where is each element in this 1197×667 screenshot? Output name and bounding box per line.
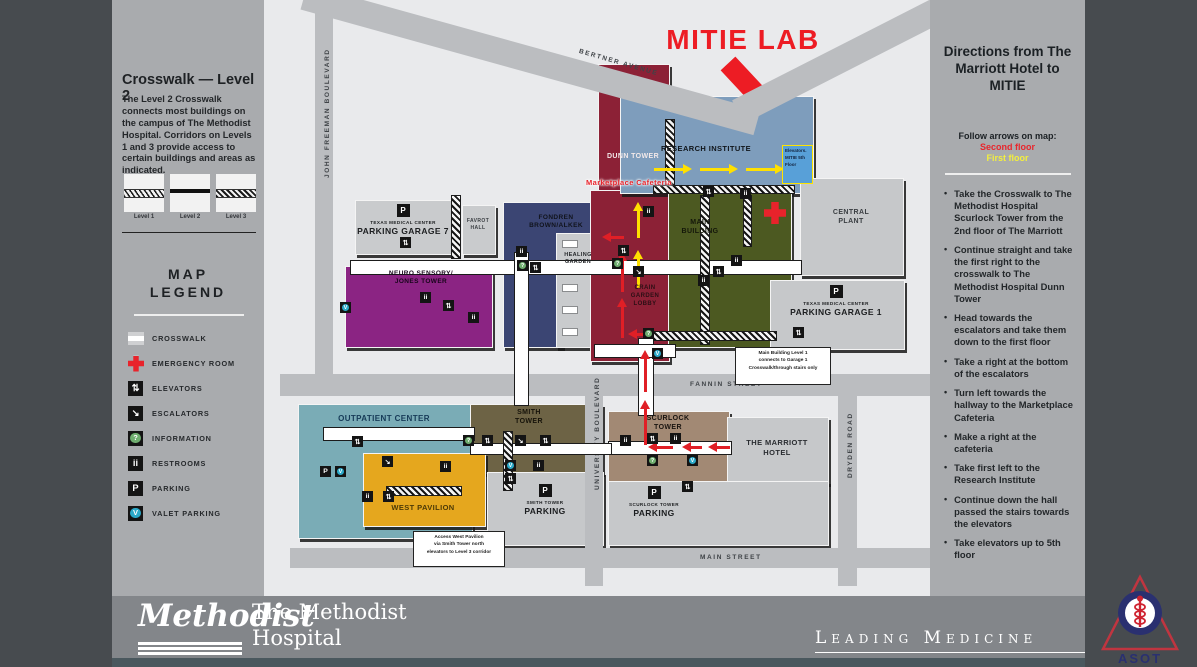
valet-parking-icon: V [128,506,143,521]
elevators-icon: ⇅ [540,435,551,446]
first-floor-route-arrow-head [729,164,738,174]
label-line: BROWN/ALKEK [481,222,631,230]
legend-label: EMERGENCY ROOM [152,359,235,368]
legend-item: VVALET PARKING [128,501,258,526]
label-line: TOWER [593,423,743,432]
building-label-central: CENTRALPLANT [776,208,926,226]
legend-item: iiRESTROOMS [128,451,258,476]
street-bertner [301,0,761,135]
leading-medicine-tagline: Leading Medicine [815,628,1085,653]
label-line: THE MARRIOTT [702,438,852,448]
valet-circle: V [130,508,141,519]
label-line: CRAIN [570,285,720,293]
label-line: RESEARCH INSTITUTE [631,144,781,154]
step-text: Continue straight and take the first rig… [954,244,1076,305]
escalators-icon: ↘ [515,435,526,446]
step-text: Continue down the hall passed the stairs… [954,494,1076,531]
information-icon: ? [463,435,474,446]
legend-item: EMERGENCY ROOM [128,351,258,376]
first-floor-route-arrow-head [633,202,643,211]
crosswalk-corridor [594,344,676,358]
legend-item: CROSSWALK [128,326,258,351]
mitie-box-line: MITIE 5th [785,154,812,161]
second-floor-route-arrow-shaft [610,236,624,239]
crosswalk-level-3-swatch: Level 3 [216,174,256,212]
crosswalk-level-2-swatch: Level 2 [170,174,210,212]
bullet: • [944,244,947,305]
elevators-icon: ⇅ [703,186,714,197]
note-line: Main Building Level 1 [737,350,829,357]
directions-steps: •Take the Crosswalk to The Methodist Hos… [944,188,1076,569]
map-legend-items: CROSSWALKEMERGENCY ROOM⇅ELEVATORS↘ESCALA… [128,326,258,526]
elevators-icon: ⇅ [682,481,693,492]
emergency-cross-legend-icon [128,356,144,372]
building-label-garage1: PARKING GARAGE 1 [761,307,911,318]
bullet: • [944,462,947,486]
information-circle: ? [465,437,473,445]
restrooms-icon: ii [420,292,431,303]
elevators-legend-icon: ⇅ [128,381,144,397]
restrooms-icon: ii [468,312,479,323]
street-label-johnfreeman: JOHN FREEMAN BOULEVARD [324,48,331,178]
direction-step: •Take first left to the Research Institu… [944,462,1076,486]
information-legend-icon: ? [128,431,144,447]
label-line: SMITH [454,408,604,417]
label-line: PLANT [776,217,926,226]
legend-label: INFORMATION [152,434,212,443]
building-label-outpatient: OUTPATIENT CENTER [309,414,459,424]
valet-circle: V [342,304,350,312]
building-label-healing: HEALINGGARDEN [503,252,653,266]
second-floor-route-arrow-shaft [644,358,647,392]
second-floor-route-arrow-shaft [621,306,624,338]
building-central [800,178,904,276]
hospital-name-line1: The Methodist [252,600,407,624]
map-note-note1: Main Building Level 1connects to Garage … [735,347,831,385]
step-text: Turn left towards the hallway to the Mar… [954,387,1076,424]
marketplace-label: Marketplace Cafeteria [554,178,704,188]
label-line: BUILDING [625,227,775,236]
note-line: Crosswalk/through stairs only [737,365,829,372]
note-line: connects to Garage 1 [737,357,829,364]
restrooms-icon: ii [440,461,451,472]
step-text: Take a right at the bottom of the escala… [954,356,1076,380]
directions-title: Directions from The Marriott Hotel to MI… [942,44,1073,95]
swatch-label: Level 2 [170,214,210,220]
information-circle: ? [130,433,141,444]
direction-step: •Turn left towards the hallway to the Ma… [944,387,1076,424]
building-label-smith: SMITHTOWER [454,408,604,426]
swatch-stripe [170,189,210,193]
step-text: Head towards the escalators and take the… [954,312,1076,349]
crosswalk-corridor [323,427,475,441]
swatch-label: Level 1 [124,214,164,220]
label-line: TOWER [454,417,604,426]
legend-label: ELEVATORS [152,384,203,393]
street-label-mainst: MAIN STREET [700,554,762,561]
bullet: • [944,312,947,349]
bullet: • [944,494,947,531]
elevators-icon: ⇅ [505,473,516,484]
direction-step: •Take elevators up to 5th floor [944,537,1076,561]
crosswalk-swatch-legend-icon [128,331,144,347]
note-line: Access West Pavilion [415,534,503,541]
valet-parking-icon: V [335,466,346,477]
information-icon: ? [643,328,654,339]
healing-garden-slot [562,240,578,248]
restrooms-icon: ii [128,456,143,471]
map-note-note2: Access West Pavilionvia Smith Tower nort… [413,531,505,567]
restrooms-icon: ii [620,435,631,446]
label-line: HEALING [503,252,653,259]
escalators-legend-icon: ↘ [128,406,144,422]
legend-label: CROSSWALK [152,334,207,343]
direction-step: •Make a right at the cafeteria [944,431,1076,455]
valet-circle: V [654,350,662,358]
elevators-icon: ⇅ [713,266,724,277]
label-line: GARDEN [503,259,653,266]
crosswalk-hatch [387,487,461,495]
label-line: Marketplace Cafeteria [554,178,704,188]
elevators-icon: ⇅ [647,433,658,444]
label-line: FONDREN [481,214,631,222]
map-legend-title-1: MAP [112,266,264,282]
follow-arrows-label: Follow arrows on map: [930,131,1085,141]
legend-label: PARKING [152,484,191,493]
building-label-scurlock: SCURLOCKTOWER [593,414,743,432]
mitie-elevators-box: Elevators.MITIE 5thFloor [782,145,813,184]
elevators-icon: ⇅ [383,491,394,502]
legend-item: PPARKING [128,476,258,501]
note-line: elevators to Level 3 corridor [415,549,503,556]
label-line: JONES TOWER [346,278,496,286]
bottom-strip [112,658,1085,667]
parking-icon: P [397,204,410,217]
step-text: Take elevators up to 5th floor [954,537,1076,561]
crosswalk-hatch [654,332,776,340]
information-circle: ? [649,457,657,465]
crosswalk-swatch [128,332,144,345]
valet-legend-icon: V [128,506,144,522]
mitie-box-line: Floor [785,161,812,168]
information-icon: ? [128,431,143,446]
parking-icon: P [830,285,843,298]
label-line: NEURO SENSORY/ [346,270,496,278]
bullet: • [944,387,947,424]
asot-label: ASOT [1118,651,1162,666]
divider [122,232,256,233]
crosswalk-level-swatches: Level 1Level 2Level 3 [124,174,256,212]
parking-legend-icon: P [128,481,144,497]
parking-icon: P [128,481,143,496]
second-floor-route-arrow-head [640,400,650,409]
second-floor-route-arrow-head [682,442,691,452]
note-line: via Smith Tower north [415,541,503,548]
divider [945,173,1071,175]
legend-label: VALET PARKING [152,509,221,518]
bullet: • [944,431,947,455]
street-fannin [280,374,930,396]
restrooms-icon: ii [670,433,681,444]
crosswalk-legend-panel: Crosswalk — Level 2 The Level 2 Crosswal… [112,0,264,596]
valet-parking-icon: V [652,348,663,359]
crosswalk-corridor [514,252,529,406]
elevators-icon: ⇅ [352,436,363,447]
first-floor-route-arrow-head [683,164,692,174]
second-floor-route-arrow-head [628,329,637,339]
legend-item: ⇅ELEVATORS [128,376,258,401]
label-line: LOBBY [570,301,720,309]
swatch-label: Level 3 [216,214,256,220]
building-label-fondren: FONDRENBROWN/ALKEK [481,214,631,231]
building-fondren [503,268,563,348]
step-text: Take first left to the Research Institut… [954,462,1076,486]
label-line: OUTPATIENT CENTER [309,414,459,424]
street-bertner [732,0,930,124]
first-floor-route-arrow-shaft [700,168,730,171]
first-floor-route-arrow-shaft [654,168,684,171]
street-label-university: UNIVERSITY BOULEVARD [594,377,601,490]
second-floor-route-arrow-shaft [690,446,702,449]
building-label-neuro: NEURO SENSORY/JONES TOWER [346,270,496,287]
valet-circle: V [337,468,345,476]
building-label-marriott: THE MARRIOTTHOTEL [702,438,852,458]
label-line: PARKING GARAGE 1 [761,307,911,318]
elevators-icon: ⇅ [443,300,454,311]
mitie-lab-title: MITIE LAB [633,24,853,56]
legend-label: ESCALATORS [152,409,210,418]
label-line: PARKING [579,508,729,519]
crosswalk-level-1-swatch: Level 1 [124,174,164,212]
campus-map: MITIE LAB BERTNER AVENUEJOHN FREEMAN BOU… [264,0,930,596]
legend-item: ↘ESCALATORS [128,401,258,426]
valet-parking-icon: V [505,460,516,471]
label-line: CENTRAL [776,208,926,217]
label-line: SCURLOCK [593,414,743,423]
map-legend-title-2: LEGEND [112,284,264,300]
information-circle: ? [645,330,653,338]
escalators-icon: ↘ [633,266,644,277]
second-floor-key: Second floor [930,142,1085,152]
first-floor-key: First floor [930,153,1085,163]
restrooms-icon: ii [362,491,373,502]
restrooms-icon: ii [740,188,751,199]
step-text: Make a right at the cafeteria [954,431,1076,455]
building-label-main: MAINBUILDING [625,218,775,236]
parking-icon: P [648,486,661,499]
restrooms-icon: ii [731,255,742,266]
restrooms-legend-icon: ii [128,456,144,472]
direction-step: •Take a right at the bottom of the escal… [944,356,1076,380]
crosswalk-description: The Level 2 Crosswalk connects most buil… [122,94,258,177]
information-icon: ? [647,455,658,466]
first-floor-route-arrow-shaft [746,168,776,171]
building-label-crain: CRAINGARDENLOBBY [570,285,720,308]
mitie-box-line: Elevators. [785,147,812,154]
street-mainst [290,548,930,568]
slide-background: Crosswalk — Level 2 The Level 2 Crosswal… [0,0,1197,667]
swatch-stripe [216,189,256,198]
valet-parking-icon: V [340,302,351,313]
elevators-icon: ⇅ [793,327,804,338]
label-line: MAIN [625,218,775,227]
swatch-stripe [124,189,164,198]
label-line: HOTEL [702,448,852,458]
second-floor-route-arrow-head [602,232,611,242]
parking-icon: P [539,484,552,497]
legend-label: RESTROOMS [152,459,206,468]
direction-step: •Head towards the escalators and take th… [944,312,1076,349]
valet-parking-icon: V [687,455,698,466]
divider [134,314,244,316]
direction-step: •Continue down the hall passed the stair… [944,494,1076,531]
second-floor-route-arrow-shaft [656,446,673,449]
restrooms-icon: ii [533,460,544,471]
elevators-icon: ⇅ [400,237,411,248]
bullet: • [944,188,947,237]
emergency-room-icon [128,356,144,372]
direction-step: •Continue straight and take the first ri… [944,244,1076,305]
label-line: GARDEN [570,293,720,301]
valet-circle: V [689,457,697,465]
escalators-icon: ↘ [382,456,393,467]
directions-panel: Directions from The Marriott Hotel to MI… [930,0,1085,596]
parking-icon: P [320,466,331,477]
second-floor-route-arrow-head [640,350,650,359]
direction-step: •Take the Crosswalk to The Methodist Hos… [944,188,1076,237]
building-label-research: RESEARCH INSTITUTE [631,144,781,154]
elevators-icon: ⇅ [482,435,493,446]
restrooms-icon: ii [643,206,654,217]
legend-item: ?INFORMATION [128,426,258,451]
hospital-name-line2: Hospital [252,626,342,650]
escalators-icon: ↘ [128,406,143,421]
valet-circle: V [507,462,515,470]
step-text: Take the Crosswalk to The Methodist Hosp… [954,188,1076,237]
bullet: • [944,537,947,561]
elevators-icon: ⇅ [128,381,143,396]
asot-logo: ASOT [1098,572,1182,666]
building-label-scurlockpark: PARKING [579,508,729,519]
healing-garden-slot [562,328,578,336]
bullet: • [944,356,947,380]
